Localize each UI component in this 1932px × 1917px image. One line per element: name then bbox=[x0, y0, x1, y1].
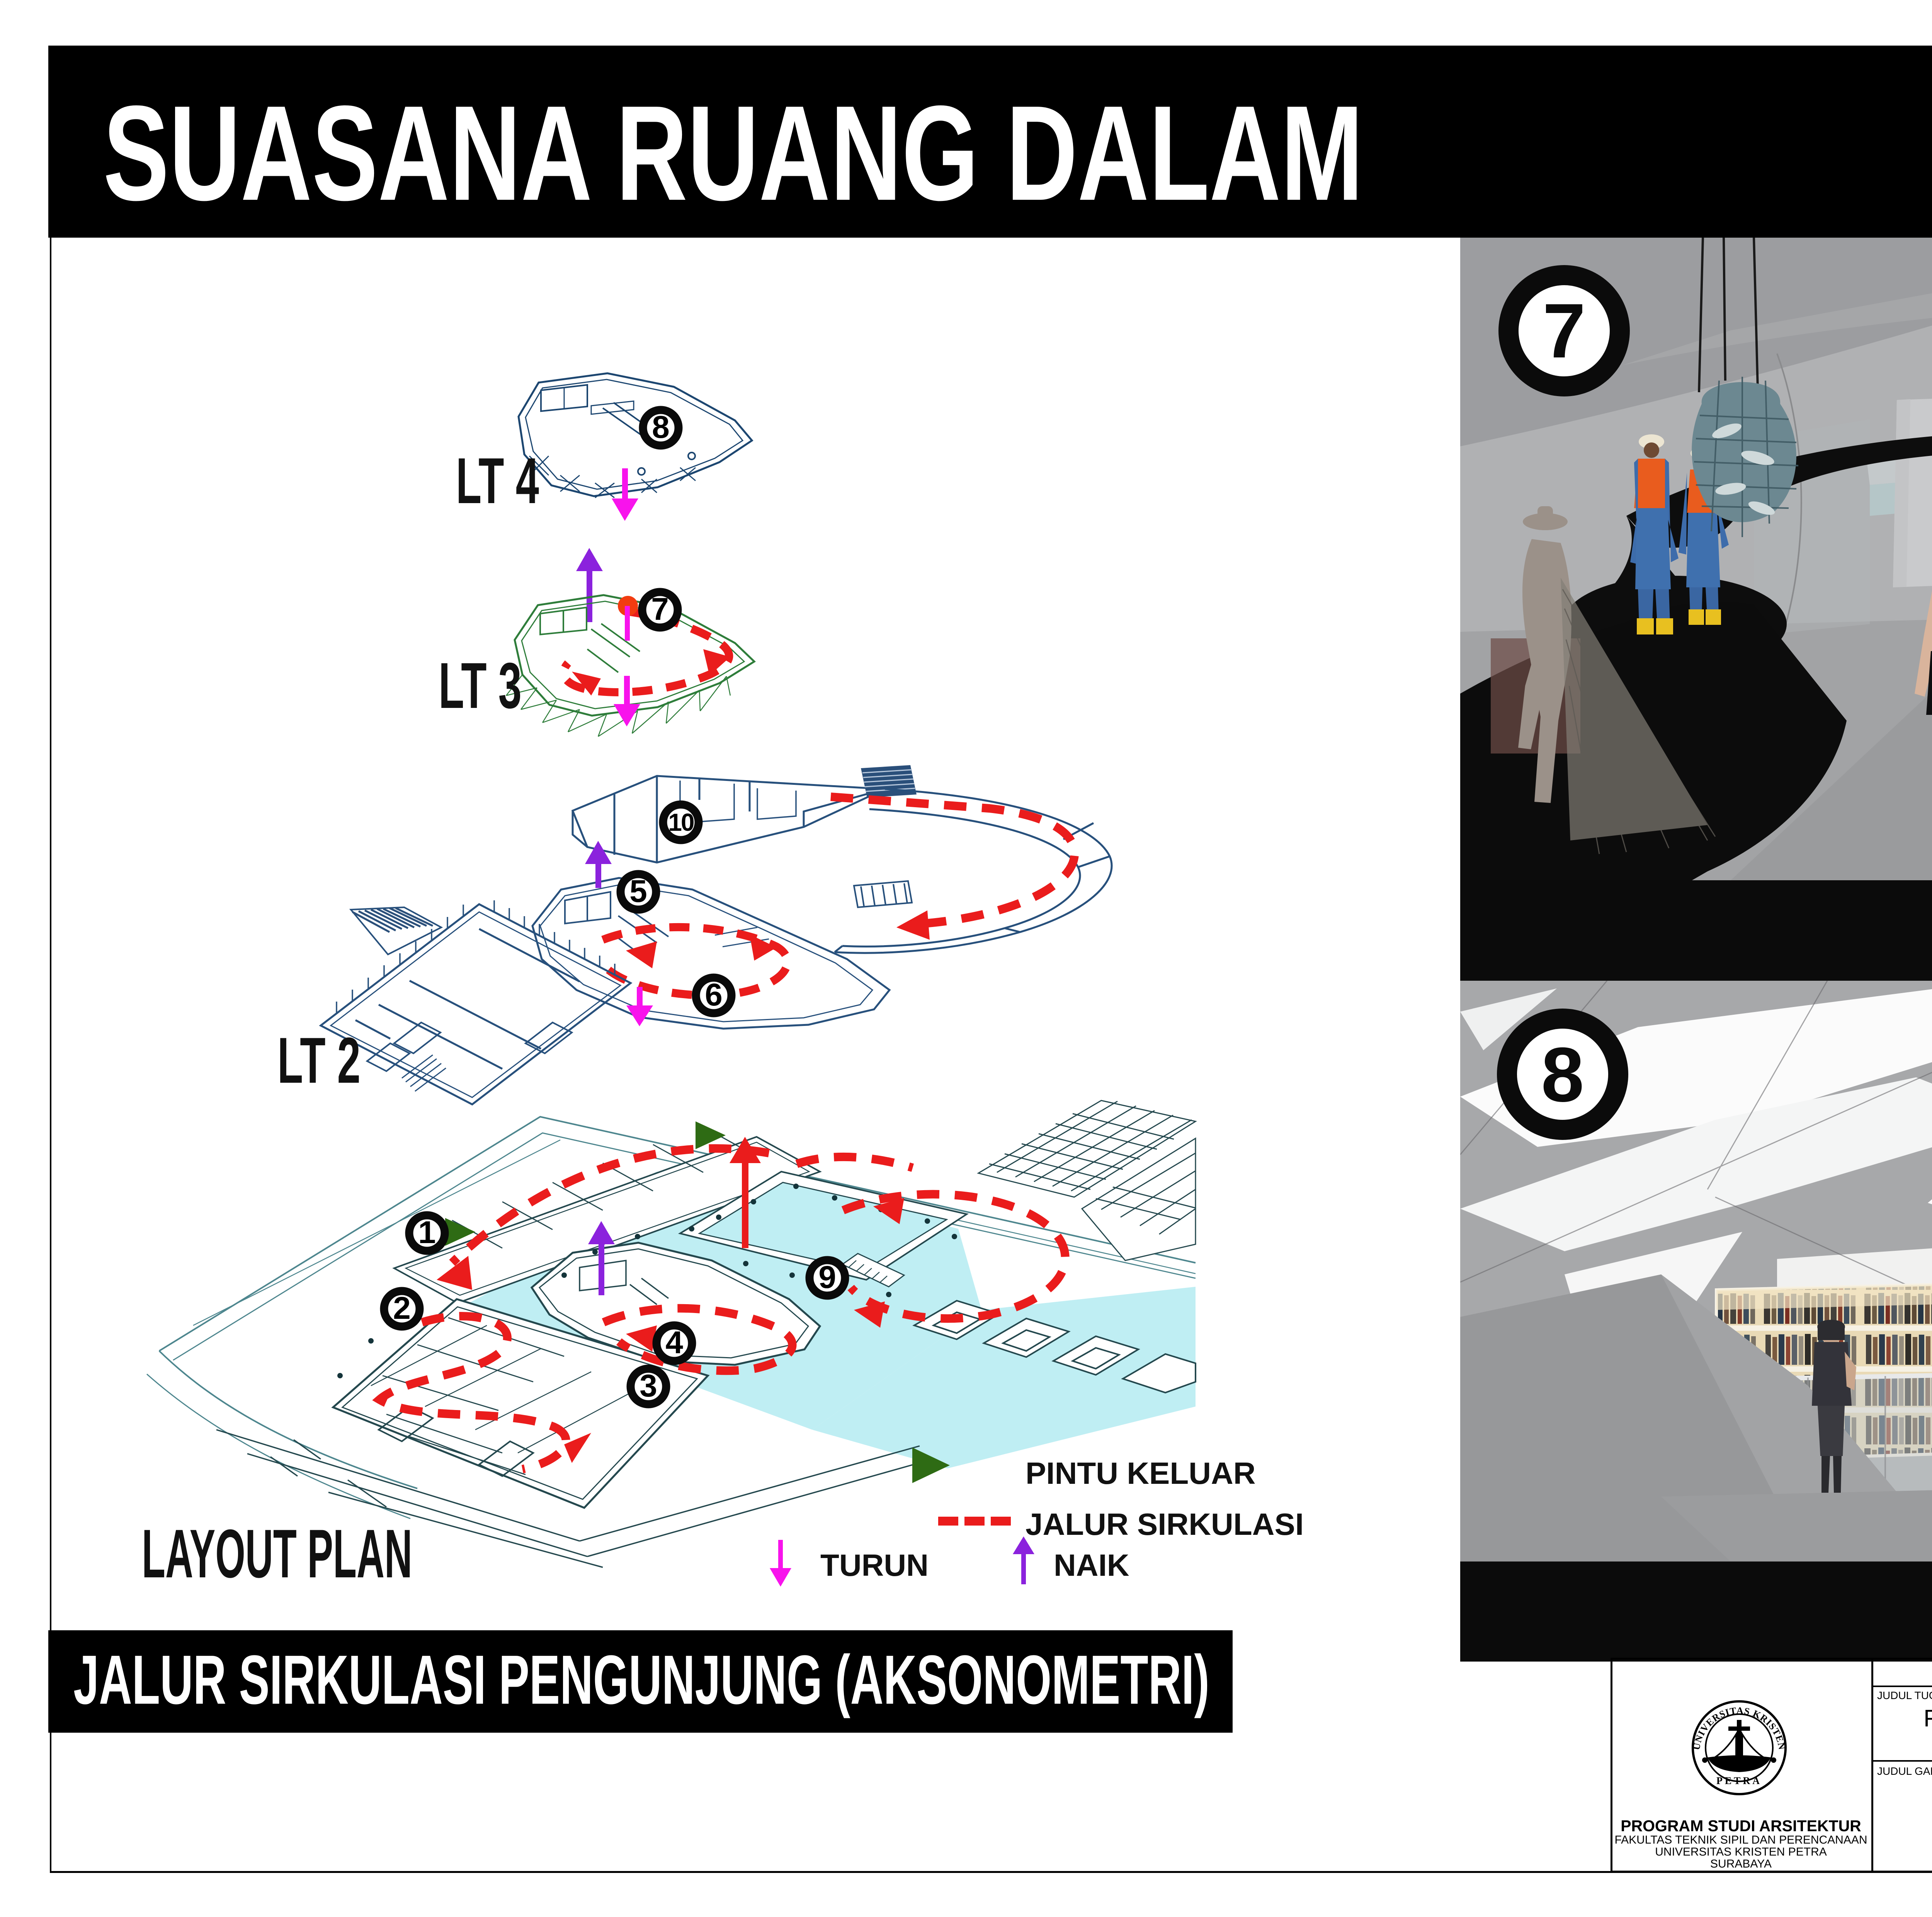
svg-text:LT 2: LT 2 bbox=[277, 1024, 361, 1097]
svg-text:1: 1 bbox=[418, 1215, 436, 1250]
svg-text:2: 2 bbox=[393, 1291, 411, 1326]
svg-text:NAIK: NAIK bbox=[1054, 1548, 1129, 1582]
svg-text:8: 8 bbox=[652, 410, 670, 445]
svg-text:4: 4 bbox=[665, 1325, 683, 1360]
svg-text:LT 3: LT 3 bbox=[439, 649, 522, 722]
svg-text:8: 8 bbox=[1541, 1032, 1584, 1118]
svg-text:SUASANA RUANG DALAM: SUASANA RUANG DALAM bbox=[103, 78, 1363, 229]
svg-text:10: 10 bbox=[668, 808, 694, 836]
svg-text:PINTU KELUAR: PINTU KELUAR bbox=[1026, 1456, 1256, 1490]
svg-text:3: 3 bbox=[639, 1368, 657, 1403]
svg-text:PETRA: PETRA bbox=[1716, 1775, 1762, 1786]
svg-text:9: 9 bbox=[818, 1260, 836, 1295]
svg-text:7: 7 bbox=[651, 592, 669, 627]
svg-text:LAYOUT PLAN: LAYOUT PLAN bbox=[142, 1515, 412, 1592]
svg-text:5: 5 bbox=[629, 874, 647, 909]
svg-text:JALUR SIRKULASI PENGUNJUNG (AK: JALUR SIRKULASI PENGUNJUNG (AKSONOMETRI) bbox=[73, 1641, 1209, 1719]
svg-text:6: 6 bbox=[705, 977, 723, 1012]
svg-text:TURUN: TURUN bbox=[820, 1548, 929, 1582]
svg-text:JALUR SIRKULASI: JALUR SIRKULASI bbox=[1026, 1507, 1304, 1541]
svg-text:7: 7 bbox=[1543, 288, 1585, 374]
svg-text:LT 4: LT 4 bbox=[456, 444, 539, 517]
